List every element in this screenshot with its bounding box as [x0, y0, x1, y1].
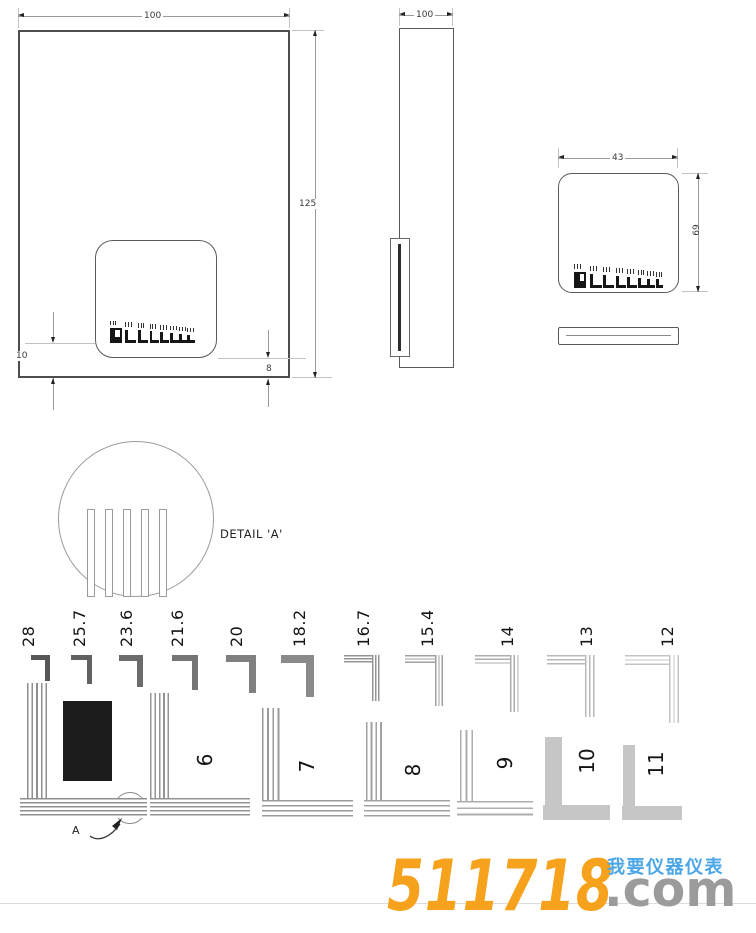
comb-tick [593, 266, 594, 271]
comb-l-foot [638, 285, 647, 288]
arrow-left-icon [18, 13, 24, 17]
lgroup-horizontal-arm-11 [622, 806, 682, 820]
lgroup-label-11: 11 [647, 744, 665, 784]
comb-tick [647, 271, 648, 276]
lgroup-label-8: 8 [404, 750, 422, 790]
comb-tick [630, 269, 631, 274]
lgroup-label-9: 9 [496, 743, 514, 783]
arrow-up-icon [51, 378, 55, 384]
comb-tick [190, 328, 191, 333]
comb-tick [163, 325, 164, 330]
pitch-bracket-right-bar-14 [510, 655, 521, 712]
comb-tick [580, 264, 581, 269]
comb-block-notch [580, 274, 585, 282]
extension-line [292, 377, 332, 378]
comb-tick [193, 328, 194, 333]
comb-tick [577, 264, 578, 269]
small-card-strip-bar [558, 327, 679, 345]
comb-tick [128, 322, 129, 327]
pitch-bracket-right-bar-21.6 [192, 655, 198, 690]
arrow-left-icon [558, 155, 564, 159]
comb-tick [627, 269, 628, 274]
arrow-left-icon [399, 12, 405, 16]
technical-drawing-page: 100 125 10 8 100 43 69 DETAIL 'A' [0, 0, 756, 933]
lgroup-vertical-arm-8 [366, 722, 385, 800]
dim-label-front-width: 100 [142, 11, 163, 21]
comb-l-foot [627, 285, 637, 288]
dim-label-card-width: 43 [610, 153, 625, 163]
comb-l-foot [170, 340, 179, 343]
detail-line-bar [159, 509, 167, 597]
detail-circle [58, 441, 214, 597]
black-rectangle [63, 701, 112, 781]
comb-l-foot [656, 285, 664, 288]
pitch-label-25.7: 25.7 [72, 587, 88, 647]
arrow-down-icon [696, 286, 700, 292]
pitch-bracket-right-bar-25.7 [87, 655, 92, 684]
comb-tick [110, 321, 111, 326]
comb-tick [653, 271, 654, 276]
dim-label-offset-right: 8 [264, 364, 274, 374]
watermark-number: 511718 [387, 857, 614, 916]
arrow-down-icon [313, 372, 317, 378]
comb-tick [616, 268, 617, 273]
comb-tick [590, 266, 591, 271]
pitch-label-13: 13 [579, 587, 595, 647]
dim-label-front-height: 125 [297, 199, 318, 209]
comb-tick [574, 264, 575, 269]
comb-tick [609, 267, 610, 272]
pitch-label-20: 20 [229, 587, 245, 647]
comb-tick [160, 325, 161, 330]
comb-l-foot [616, 285, 626, 288]
comb-tick [185, 327, 186, 332]
extension-line [218, 358, 306, 359]
comb-l-foot [647, 285, 655, 288]
pitch-bracket-right-bar-12 [669, 655, 682, 723]
comb-tick [138, 323, 139, 328]
lgroup-label-6: 6 [196, 740, 214, 780]
comb-tick [606, 267, 607, 272]
comb-tick [152, 324, 153, 329]
comb-tick [166, 325, 167, 330]
lgroup-vertical-arm-10 [545, 737, 562, 805]
comb-tick [141, 323, 142, 328]
comb-tick [661, 272, 662, 277]
lgroup-vertical-arm-6 [150, 693, 172, 798]
lgroup-vertical-arm-11 [623, 745, 635, 806]
comb-tick [150, 324, 151, 329]
pitch-label-14: 14 [500, 587, 516, 647]
comb-tick [650, 271, 651, 276]
pitch-label-28: 28 [21, 587, 37, 647]
comb-tick [596, 266, 597, 271]
detail-line-bar [105, 509, 113, 597]
comb-tick [643, 270, 644, 275]
detail-line-bar [87, 509, 95, 597]
arrow-up-icon [266, 379, 270, 385]
dim-label-offset-left: 10 [14, 351, 29, 361]
extension-line [399, 8, 400, 26]
comb-l-foot [590, 285, 601, 288]
lgroup-horizontal-arm-a [20, 798, 147, 818]
comb-tick [176, 326, 177, 331]
strip-bar-midline [566, 335, 671, 336]
arrow-down-icon [51, 337, 55, 343]
pitch-bracket-right-bar-18.2 [306, 655, 314, 697]
comb-tick [143, 323, 144, 328]
dimension-line [53, 312, 54, 338]
comb-tick [619, 268, 620, 273]
arrow-down-icon [266, 352, 270, 358]
pitch-label-16.7: 16.7 [356, 587, 372, 647]
lgroup-label-7: 7 [298, 746, 316, 786]
comb-tick [641, 270, 642, 275]
comb-tick [115, 321, 116, 326]
detail-label: DETAIL 'A' [220, 527, 283, 541]
pitch-label-15.4: 15.4 [420, 587, 436, 647]
pitch-bracket-right-bar-20 [249, 655, 256, 693]
comb-tick [182, 327, 183, 332]
comb-tick [155, 324, 156, 329]
comb-tick [633, 269, 634, 274]
comb-tick [173, 326, 174, 331]
comb-l-foot [187, 340, 194, 343]
comb-l-foot [138, 340, 148, 343]
lgroup-vertical-arm-a [27, 683, 50, 798]
comb-tick [622, 268, 623, 273]
pitch-bracket-right-bar-15.4 [435, 655, 445, 706]
side-view-pattern-strip [398, 244, 401, 351]
lgroup-vertical-arm-9 [460, 730, 477, 801]
dim-label-side-width: 100 [414, 10, 435, 20]
comb-l-foot [160, 340, 169, 343]
comb-tick [125, 322, 126, 327]
lgroup-horizontal-arm-10 [543, 805, 610, 820]
comb-tick [656, 272, 657, 277]
dimension-line [268, 330, 269, 353]
lgroup-vertical-arm-7 [262, 708, 283, 800]
pitch-label-21.6: 21.6 [170, 587, 186, 647]
pitch-label-12: 12 [660, 587, 676, 647]
comb-l-foot [179, 340, 187, 343]
extension-line [18, 8, 19, 28]
pitch-label-18.2: 18.2 [292, 587, 308, 647]
comb-l-foot [150, 340, 159, 343]
comb-tick [659, 272, 660, 277]
arrow-right-icon [672, 155, 678, 159]
comb-tick [170, 326, 171, 331]
pitch-bracket-right-bar-28 [45, 655, 50, 681]
pitch-bracket-right-bar-13 [585, 655, 597, 717]
comb-tick [187, 328, 188, 333]
detail-line-bar [141, 509, 149, 597]
comb-tick [113, 321, 114, 326]
arrow-up-icon [313, 30, 317, 36]
extension-line [452, 8, 453, 26]
dim-label-card-height: 69 [691, 215, 703, 245]
pitch-bracket-right-bar-23.6 [137, 655, 143, 687]
comb-l-foot [125, 340, 136, 343]
arrow-up-icon [696, 173, 700, 179]
arrow-right-icon [284, 13, 290, 17]
comb-l-foot [603, 285, 613, 288]
extension-line [25, 343, 95, 344]
detail-line-bar [123, 509, 131, 597]
comb-tick [131, 322, 132, 327]
comb-tick [179, 327, 180, 332]
lgroup-label-10: 10 [578, 741, 596, 781]
drawing-element [112, 818, 122, 830]
extension-line [292, 30, 324, 31]
watermark-tagline: 我要仪器仪表 [607, 853, 724, 879]
arrow-right-icon [447, 12, 453, 16]
lgroup-horizontal-arm-8 [364, 800, 450, 820]
lgroup-horizontal-arm-7 [262, 800, 353, 820]
lgroup-horizontal-arm-9 [457, 801, 533, 820]
comb-block-notch [115, 330, 120, 337]
comb-tick [603, 267, 604, 272]
extension-line [289, 8, 290, 28]
comb-tick [638, 270, 639, 275]
extension-line [682, 173, 708, 174]
pitch-bracket-right-bar-16.7 [372, 655, 381, 701]
extension-line [682, 291, 708, 292]
callout-a-label: A [72, 824, 80, 837]
lgroup-horizontal-arm-6 [150, 798, 250, 818]
